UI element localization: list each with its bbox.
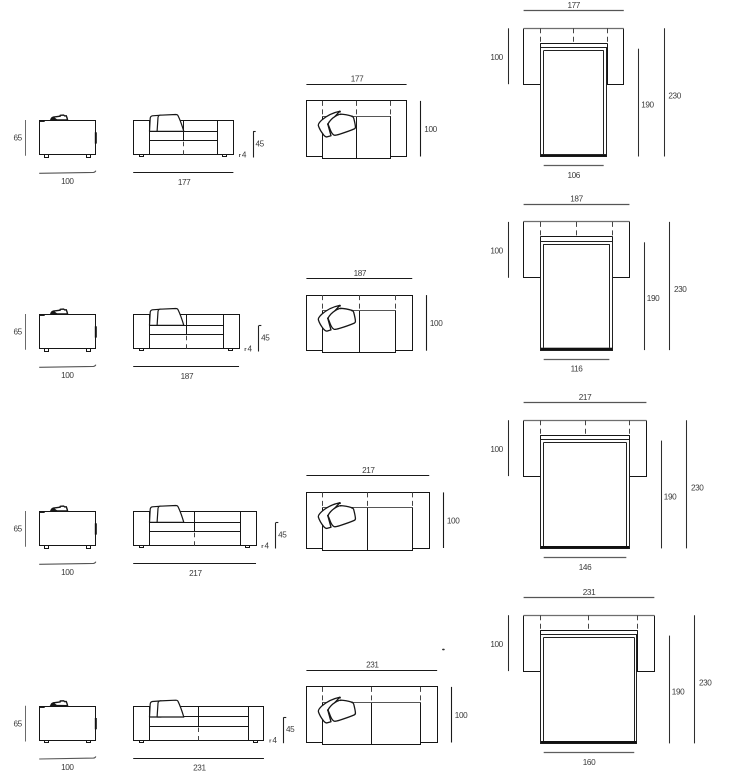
svg-text:100: 100 xyxy=(490,247,503,256)
svg-text:230: 230 xyxy=(674,285,687,294)
svg-text:100: 100 xyxy=(61,371,74,380)
svg-text:190: 190 xyxy=(647,294,660,303)
svg-text:217: 217 xyxy=(189,569,202,578)
svg-text:65: 65 xyxy=(13,719,22,728)
svg-text:230: 230 xyxy=(668,92,681,101)
svg-text:100: 100 xyxy=(447,516,460,525)
svg-text:187: 187 xyxy=(181,372,194,381)
svg-text:217: 217 xyxy=(362,466,375,475)
svg-text:230: 230 xyxy=(699,678,712,687)
svg-text:146: 146 xyxy=(579,563,592,572)
svg-text:106: 106 xyxy=(567,171,580,180)
svg-text:231: 231 xyxy=(583,588,596,597)
svg-text:100: 100 xyxy=(490,640,503,649)
svg-text:190: 190 xyxy=(641,101,654,110)
svg-text:65: 65 xyxy=(13,525,22,534)
svg-text:100: 100 xyxy=(430,319,443,328)
svg-text:45: 45 xyxy=(286,725,295,734)
svg-text:116: 116 xyxy=(571,365,584,374)
svg-text:100: 100 xyxy=(61,568,74,577)
svg-text:65: 65 xyxy=(13,328,22,337)
svg-text:177: 177 xyxy=(567,1,580,10)
svg-text:45: 45 xyxy=(278,531,287,540)
svg-text:190: 190 xyxy=(664,492,677,501)
svg-text:160: 160 xyxy=(583,758,596,767)
svg-text:100: 100 xyxy=(424,125,437,134)
svg-text:100: 100 xyxy=(455,711,468,720)
svg-text:100: 100 xyxy=(490,53,503,62)
svg-text:100: 100 xyxy=(61,177,74,186)
svg-text:100: 100 xyxy=(61,763,74,772)
svg-text:231: 231 xyxy=(366,661,379,670)
svg-text:177: 177 xyxy=(351,75,364,84)
svg-text:45: 45 xyxy=(256,140,265,149)
svg-text:187: 187 xyxy=(570,195,583,204)
svg-text:217: 217 xyxy=(579,393,592,402)
svg-text:190: 190 xyxy=(672,687,685,696)
svg-text:100: 100 xyxy=(490,445,503,454)
svg-text:230: 230 xyxy=(691,483,704,492)
svg-text:177: 177 xyxy=(178,178,191,187)
svg-text:65: 65 xyxy=(13,134,22,143)
svg-text:187: 187 xyxy=(354,269,367,278)
svg-text:231: 231 xyxy=(193,764,206,773)
svg-text:45: 45 xyxy=(261,334,270,343)
